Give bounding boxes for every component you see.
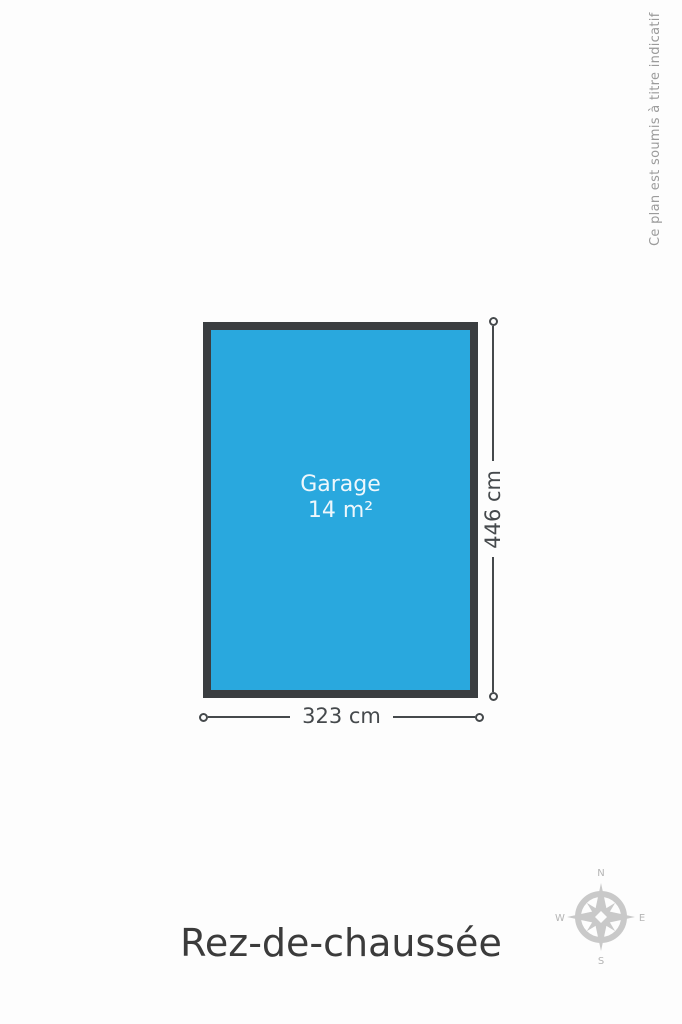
dimension-endpoint-left — [199, 713, 208, 722]
compass-south-label: S — [598, 956, 604, 966]
dimension-height-label: 446 cm — [481, 461, 505, 558]
compass-north-label: N — [597, 868, 604, 879]
dimension-endpoint-right — [475, 713, 484, 722]
dimension-endpoint-top — [489, 317, 498, 326]
dimension-line-upper — [492, 326, 494, 461]
dimension-line-left — [208, 716, 290, 718]
dimension-width: 323 cm — [199, 709, 484, 725]
dimension-endpoint-bottom — [489, 692, 498, 701]
floor-plan-page: Ce plan est soumis à titre indicatif Gar… — [0, 0, 682, 1024]
dimension-line-lower — [492, 557, 494, 692]
disclaimer-vertical-text: Ce plan est soumis à titre indicatif — [648, 14, 674, 246]
room-garage: Garage 14 m² — [203, 322, 478, 698]
room-name-label: Garage — [300, 472, 381, 498]
dimension-height: 446 cm — [485, 317, 501, 701]
compass-west-label: W — [555, 913, 565, 924]
dimension-line-right — [393, 716, 475, 718]
room-label-block: Garage 14 m² — [300, 472, 381, 524]
room-area-label: 14 m² — [300, 498, 381, 524]
dimension-width-label: 323 cm — [290, 704, 393, 728]
compass-rose-icon: N S W E — [553, 864, 649, 966]
compass-east-label: E — [639, 913, 645, 924]
